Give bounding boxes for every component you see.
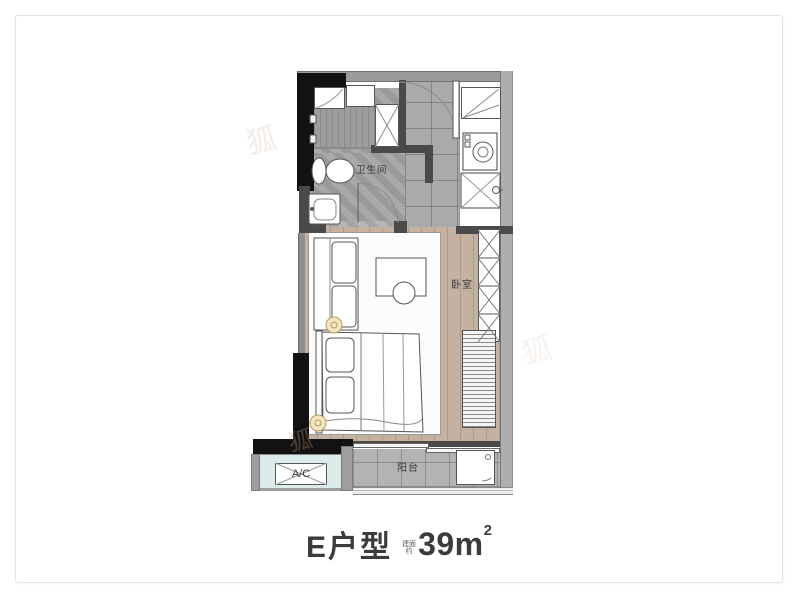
area-note-top: 建面 (402, 541, 416, 549)
area-note: 建面 约 (402, 541, 416, 556)
watermark-glyph: 狐 (517, 323, 555, 372)
unit-area: 39m (418, 526, 484, 563)
bedroom-label: 卧室 (451, 276, 473, 291)
sofa (314, 238, 358, 330)
washing-machine (463, 133, 497, 170)
unit-area-superscript: 2 (484, 522, 492, 539)
bedside-lamp-2 (310, 415, 326, 431)
furniture-layer (251, 69, 513, 496)
chair (393, 282, 415, 304)
wardrobe-doors (478, 230, 500, 342)
unit-name: E户型 (306, 522, 392, 566)
shower-fixtures (310, 115, 316, 143)
page: { "title": { "name": "E户型", "area_note_t… (0, 0, 800, 600)
balcony-appliance-detail (482, 455, 491, 482)
floor-plan: 卫生间 卧室 阳台 A/C (251, 69, 513, 496)
shaft-cabinet-door (316, 89, 343, 108)
area-note-bottom: 约 (402, 548, 416, 556)
kitchen-sink (461, 173, 503, 208)
bathroom-door (358, 183, 398, 223)
bathroom-sink (309, 194, 340, 224)
entrance-door (399, 81, 459, 139)
kitchen-cabinet-doors (463, 89, 499, 118)
bathroom-label: 卫生间 (356, 162, 388, 176)
toilet (312, 158, 354, 184)
plan-title: E户型 建面 约 39m 2 (16, 516, 782, 572)
balcony-label: 阳台 (397, 459, 419, 474)
ac-label: A/C (275, 463, 327, 485)
bedside-lamp-1 (326, 317, 342, 333)
bed (316, 331, 423, 433)
tall-cabinet-x (375, 104, 399, 147)
floorplan-card: 卫生间 卧室 阳台 A/C 狐 狐 狐 E户型 建面 约 39m 2 (15, 15, 783, 583)
